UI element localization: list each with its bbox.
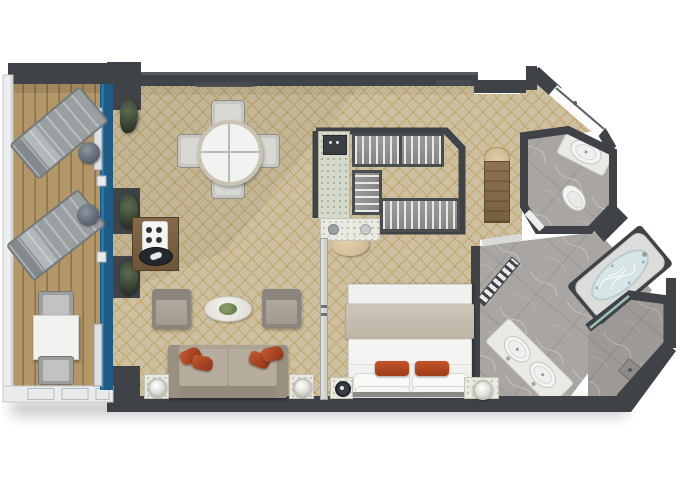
round-side-table — [77, 204, 99, 226]
bed-sheet-band — [349, 339, 471, 365]
sliding-partition — [320, 238, 328, 400]
hanging-rail-closet — [352, 170, 382, 215]
entry-door-handle — [573, 101, 577, 105]
top-wall-bevel — [141, 72, 478, 75]
headboard — [349, 392, 471, 397]
safe-dial — [336, 141, 339, 144]
hall-wood-bench — [484, 161, 510, 223]
vanity-counter — [320, 218, 380, 241]
bed-throw — [346, 304, 474, 339]
safe-dial — [329, 141, 332, 144]
table-divider — [201, 151, 259, 153]
accent-pillow — [415, 361, 449, 376]
armchair — [152, 289, 191, 329]
safe — [323, 135, 347, 155]
table-divider — [228, 124, 230, 182]
oval-coffee-table — [204, 296, 252, 322]
balcony-chair — [38, 356, 74, 385]
door-frame-mark — [97, 176, 106, 186]
nightstand-lamp — [473, 380, 493, 400]
vanity-item — [360, 224, 371, 235]
armchair-cushion — [266, 300, 297, 324]
lamp-table — [144, 374, 169, 399]
top-wall-notch — [474, 80, 526, 93]
closet-divider — [399, 136, 402, 164]
nightstand-lamp — [335, 381, 351, 397]
hanging-rail-closet — [380, 198, 460, 232]
partition-handle — [321, 313, 327, 316]
lamp-center — [340, 386, 344, 390]
hanging-rail-closet — [352, 133, 444, 167]
nightstand — [330, 377, 353, 399]
double-bed — [348, 284, 472, 398]
sofa-back — [179, 385, 277, 398]
bottle — [146, 237, 152, 243]
armchair-cushion — [156, 300, 187, 325]
bottle — [156, 227, 162, 233]
table-lamp — [293, 378, 312, 397]
floral-centerpiece — [219, 303, 237, 315]
floor-plan — [0, 0, 680, 486]
balcony-square-table — [33, 315, 79, 360]
table-lamp — [148, 378, 167, 397]
marble-bench — [318, 131, 350, 220]
sofa-arm — [168, 345, 179, 398]
lamp-table — [289, 374, 314, 399]
door-frame-mark — [97, 252, 106, 262]
bottle — [156, 237, 162, 243]
round-side-table — [78, 142, 100, 164]
accent-pillow — [375, 361, 409, 376]
bottle — [149, 251, 162, 261]
sliding-door-panel — [94, 324, 102, 386]
bottle — [146, 227, 152, 233]
ceiling-ledge — [436, 80, 472, 85]
vanity-item — [328, 224, 339, 235]
carpet-wall-shade — [113, 86, 474, 95]
railing-line — [11, 75, 13, 398]
right-outer-wall — [666, 278, 676, 348]
round-dining-table — [197, 120, 263, 186]
partition-handle — [321, 305, 327, 308]
serving-tray — [139, 247, 173, 266]
balcony-top-wall — [8, 63, 108, 84]
minibar-console — [132, 217, 179, 271]
ceiling-ledge — [195, 82, 255, 87]
nightstand — [464, 377, 499, 399]
deck-shade — [13, 84, 100, 93]
armchair — [262, 289, 301, 328]
